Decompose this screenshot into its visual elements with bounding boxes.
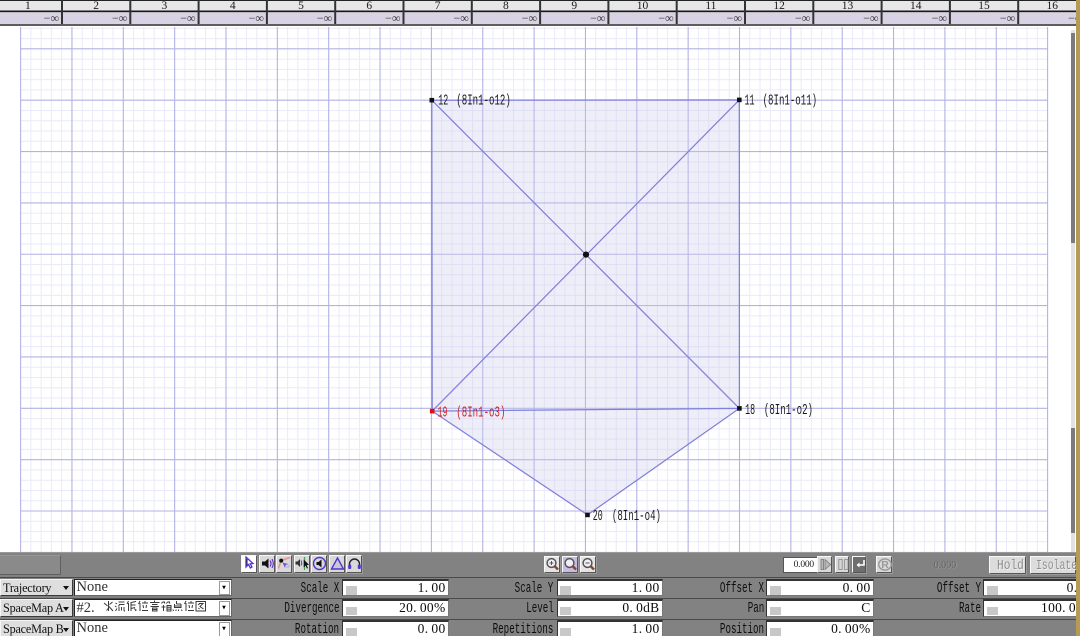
svg-text:8: 8 xyxy=(503,0,509,12)
svg-text:(8In1-o2): (8In1-o2) xyxy=(764,403,813,419)
svg-text:19: 19 xyxy=(438,406,448,422)
svg-text:1: 1 xyxy=(25,0,31,12)
svg-text:−∞: −∞ xyxy=(522,11,537,25)
svg-text:−∞: −∞ xyxy=(249,11,264,25)
svg-text:9: 9 xyxy=(571,0,577,12)
svg-text:−∞: −∞ xyxy=(863,11,878,25)
svg-text:−∞: −∞ xyxy=(1000,11,1015,25)
svg-text:11: 11 xyxy=(705,0,716,12)
svg-text:(8In1-o12): (8In1-o12) xyxy=(456,94,511,110)
svg-text:−∞: −∞ xyxy=(727,11,742,25)
svg-text:16: 16 xyxy=(1047,0,1059,12)
svg-text:14: 14 xyxy=(910,0,922,12)
svg-text:(8In1-o11): (8In1-o11) xyxy=(763,93,818,109)
svg-text:12: 12 xyxy=(773,0,785,12)
svg-text:7: 7 xyxy=(435,0,441,12)
svg-text:3: 3 xyxy=(162,0,168,12)
svg-text:13: 13 xyxy=(842,0,854,12)
svg-text:−∞: −∞ xyxy=(112,11,127,25)
svg-text:R: R xyxy=(881,559,889,571)
svg-text:(8In1-o3): (8In1-o3) xyxy=(456,406,505,422)
svg-text:15: 15 xyxy=(978,0,990,12)
svg-text:−∞: −∞ xyxy=(453,11,468,25)
svg-text:20: 20 xyxy=(593,509,603,525)
svg-text:−∞: −∞ xyxy=(385,11,400,25)
svg-text:5: 5 xyxy=(298,0,304,12)
svg-text:12: 12 xyxy=(438,94,448,110)
svg-text:−∞: −∞ xyxy=(180,11,195,25)
svg-text:11: 11 xyxy=(745,93,755,109)
svg-text:−∞: −∞ xyxy=(317,11,332,25)
svg-text:4: 4 xyxy=(230,0,236,12)
svg-text:2: 2 xyxy=(93,0,99,12)
svg-text:18: 18 xyxy=(745,403,755,419)
svg-text:−∞: −∞ xyxy=(590,11,605,25)
svg-text:−∞: −∞ xyxy=(658,11,673,25)
svg-text:−∞: −∞ xyxy=(795,11,810,25)
svg-text:(8In1-o4): (8In1-o4) xyxy=(612,509,661,525)
svg-text:−∞: −∞ xyxy=(932,11,947,25)
svg-text:6: 6 xyxy=(366,0,372,12)
svg-text:10: 10 xyxy=(637,0,649,12)
svg-text:−∞: −∞ xyxy=(44,11,59,25)
